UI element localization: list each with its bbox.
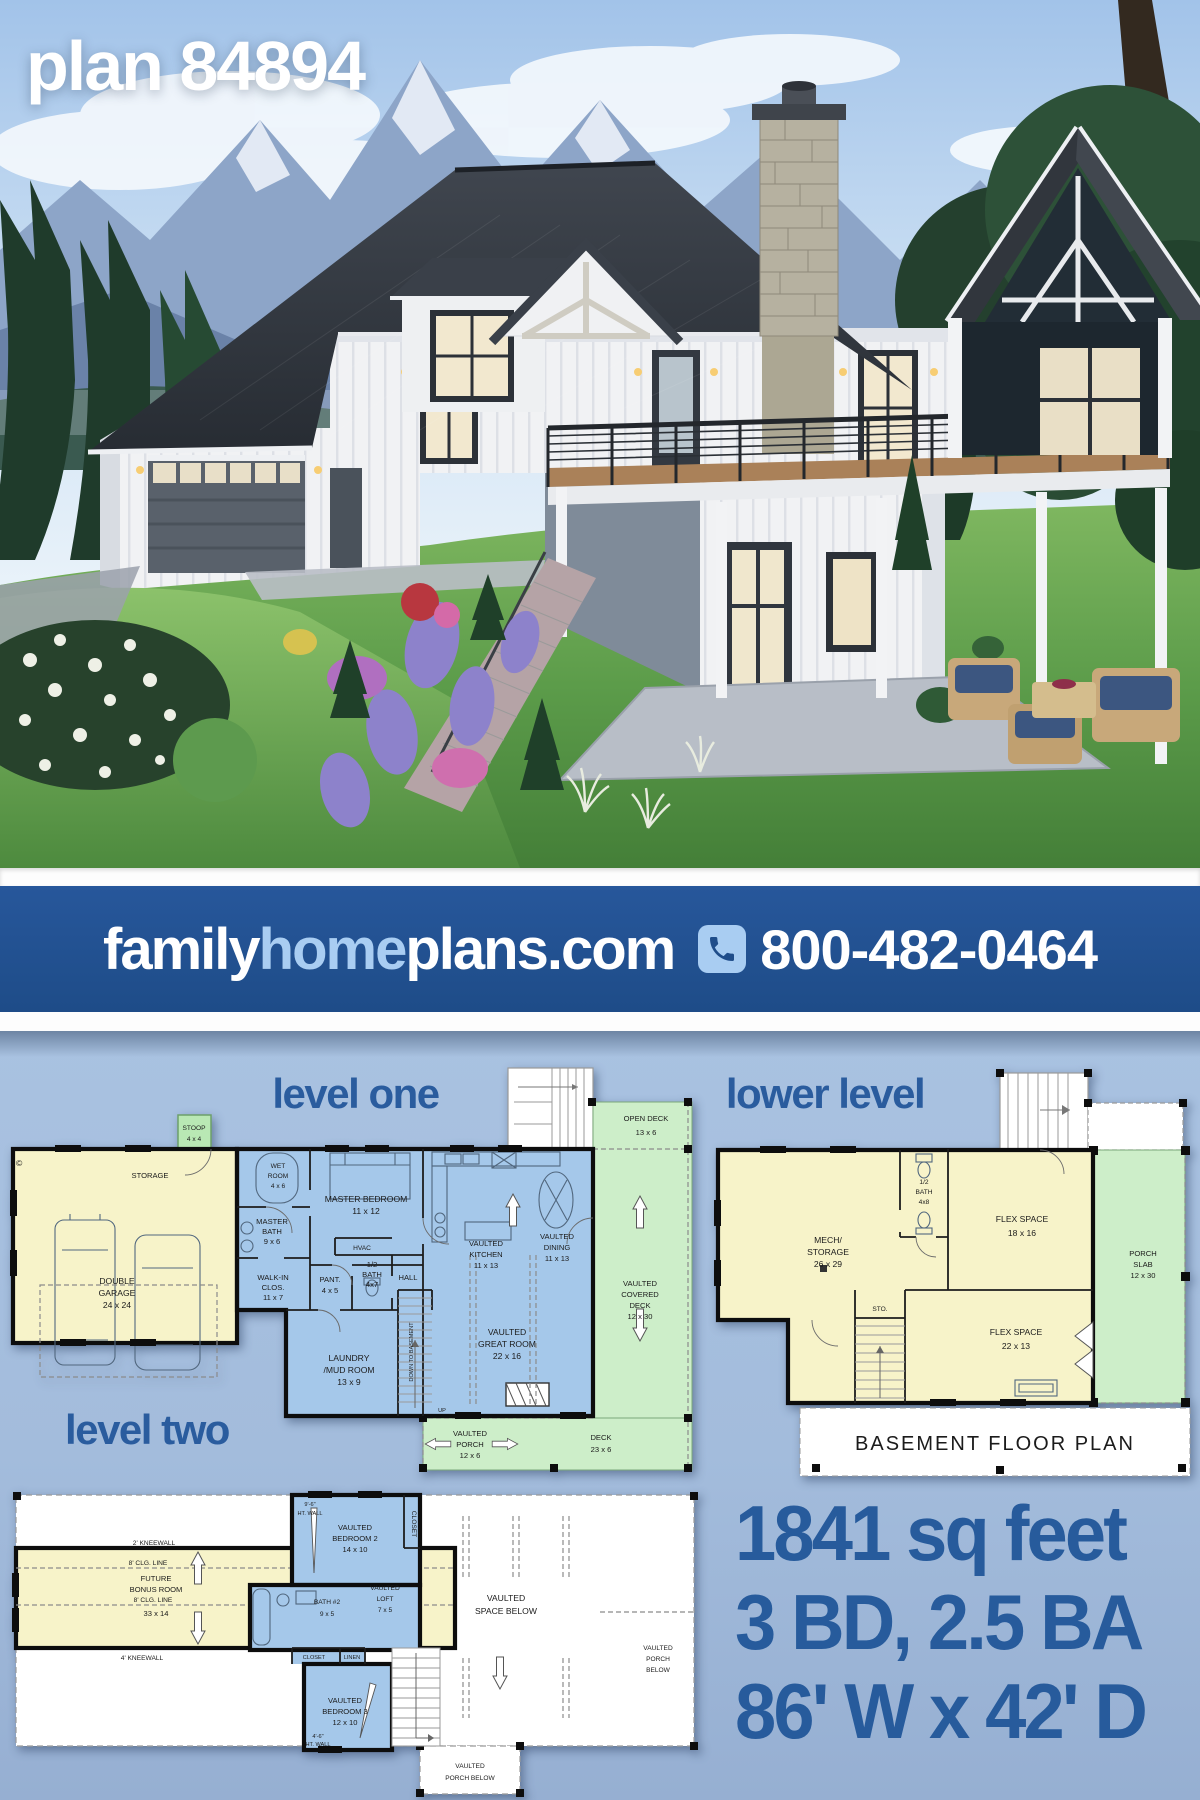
porch-below-box xyxy=(420,1746,520,1794)
svg-text:FUTURE: FUTURE xyxy=(141,1574,172,1583)
svg-text:DECK: DECK xyxy=(629,1301,650,1310)
phone-number: 800-482-0464 xyxy=(760,917,1097,982)
svg-text:24 x 24: 24 x 24 xyxy=(103,1300,131,1310)
svg-text:DINING: DINING xyxy=(544,1243,571,1252)
svg-text:4 x 4: 4 x 4 xyxy=(187,1136,202,1143)
svg-text:STORAGE: STORAGE xyxy=(807,1247,849,1257)
svg-text:VAULTED: VAULTED xyxy=(540,1232,574,1241)
svg-text:VAULTED: VAULTED xyxy=(455,1763,485,1770)
svg-text:VAULTED: VAULTED xyxy=(338,1523,372,1532)
svg-text:PORCH BELOW: PORCH BELOW xyxy=(445,1775,495,1782)
svg-text:©: © xyxy=(16,1158,23,1168)
plan-stats: 1841 sq feet 3 BD, 2.5 BA 86' W x 42' D xyxy=(735,1489,1172,1756)
svg-text:VAULTED: VAULTED xyxy=(623,1279,657,1288)
svg-text:HALL: HALL xyxy=(399,1273,418,1282)
svg-text:BONUS ROOM: BONUS ROOM xyxy=(130,1585,183,1594)
svg-text:4x8: 4x8 xyxy=(919,1199,930,1206)
svg-text:LINEN: LINEN xyxy=(344,1655,360,1661)
svg-text:7 x 5: 7 x 5 xyxy=(378,1607,393,1614)
svg-text:12 x 30: 12 x 30 xyxy=(1131,1271,1156,1280)
lower-level-floorplan: BASEMENT FLOOR PLAN 1/2 BATH 4x8 FLEX SP… xyxy=(700,1050,1200,1480)
svg-text:4 x 5: 4 x 5 xyxy=(322,1286,338,1295)
svg-text:PORCH: PORCH xyxy=(456,1440,483,1449)
svg-text:FLEX SPACE: FLEX SPACE xyxy=(996,1214,1049,1224)
house-photo xyxy=(0,0,1200,868)
brand-family: family xyxy=(103,917,259,982)
svg-text:VAULTED: VAULTED xyxy=(370,1585,400,1592)
svg-text:BATH: BATH xyxy=(915,1189,932,1196)
svg-text:STO.: STO. xyxy=(872,1306,887,1313)
svg-text:ROOM: ROOM xyxy=(268,1173,289,1180)
svg-text:COVERED: COVERED xyxy=(621,1290,659,1299)
svg-text:/MUD ROOM: /MUD ROOM xyxy=(323,1365,374,1375)
svg-text:4x7: 4x7 xyxy=(366,1280,378,1289)
stat-size: 86' W x 42' D xyxy=(735,1667,1172,1756)
svg-text:BEDROOM 2: BEDROOM 2 xyxy=(332,1534,378,1543)
svg-text:WALK-IN: WALK-IN xyxy=(257,1273,288,1282)
basement-caption: BASEMENT FLOOR PLAN xyxy=(855,1433,1135,1455)
svg-text:BATH: BATH xyxy=(362,1270,382,1279)
svg-text:VAULTED: VAULTED xyxy=(487,1593,525,1603)
svg-text:MECH/: MECH/ xyxy=(814,1235,842,1245)
svg-text:VAULTED: VAULTED xyxy=(469,1239,503,1248)
svg-text:HVAC: HVAC xyxy=(353,1245,371,1252)
divider-strip-bottom xyxy=(0,1012,1200,1031)
plan-number-overlay: plan 84894 xyxy=(26,26,364,106)
phone-icon xyxy=(698,925,746,973)
svg-text:FLEX SPACE: FLEX SPACE xyxy=(990,1327,1043,1337)
svg-text:1/2: 1/2 xyxy=(367,1260,378,1269)
svg-text:11 x 7: 11 x 7 xyxy=(263,1293,283,1302)
svg-text:12 x 10: 12 x 10 xyxy=(333,1718,358,1727)
svg-text:OPEN DECK: OPEN DECK xyxy=(624,1114,669,1123)
svg-text:4 x 6: 4 x 6 xyxy=(271,1183,286,1190)
caption-band: BASEMENT FLOOR PLAN xyxy=(800,1408,1190,1476)
brand-plans: plans.com xyxy=(405,917,674,982)
divider-strip-top xyxy=(0,868,1200,886)
svg-text:DOWN TO BASEMENT: DOWN TO BASEMENT xyxy=(409,1322,415,1382)
level-two-floorplan: 2' KNEEWALL 8' CLG. LINE 8' CLG. LINE FU… xyxy=(8,1488,700,1800)
level-one-floorplan: STOOP 4 x 4 © STORAGE DOUBLE GARAGE 24 x… xyxy=(0,1040,700,1480)
svg-text:GARAGE: GARAGE xyxy=(99,1288,136,1298)
svg-text:MASTER BEDROOM: MASTER BEDROOM xyxy=(325,1194,408,1204)
svg-text:LOFT: LOFT xyxy=(377,1596,394,1603)
svg-text:LAUNDRY: LAUNDRY xyxy=(329,1353,370,1363)
svg-text:HT. WALL: HT. WALL xyxy=(306,1742,331,1748)
svg-text:VAULTED: VAULTED xyxy=(643,1645,673,1652)
brand-logo: familyhomeplans.com xyxy=(103,916,674,983)
svg-text:8' CLG. LINE: 8' CLG. LINE xyxy=(134,1597,173,1604)
svg-text:VAULTED: VAULTED xyxy=(453,1429,487,1438)
svg-text:DECK: DECK xyxy=(590,1433,611,1442)
level-two-stairwell xyxy=(392,1648,440,1746)
svg-text:23 x 6: 23 x 6 xyxy=(591,1445,612,1454)
svg-text:MASTER: MASTER xyxy=(256,1217,288,1226)
svg-text:9 x 6: 9 x 6 xyxy=(264,1237,280,1246)
svg-text:CLOSET: CLOSET xyxy=(303,1655,326,1661)
svg-text:18 x 16: 18 x 16 xyxy=(1008,1228,1036,1238)
svg-text:13 x 9: 13 x 9 xyxy=(337,1377,361,1387)
svg-text:BEDROOM 3: BEDROOM 3 xyxy=(322,1707,368,1716)
svg-text:PORCH: PORCH xyxy=(1129,1249,1156,1258)
garage-room xyxy=(13,1149,237,1343)
stat-bed-bath: 3 BD, 2.5 BA xyxy=(735,1578,1172,1667)
svg-text:2' KNEEWALL: 2' KNEEWALL xyxy=(133,1540,176,1547)
svg-text:14 x 10: 14 x 10 xyxy=(343,1545,368,1554)
svg-text:VAULTED: VAULTED xyxy=(328,1696,362,1705)
chimney xyxy=(752,81,846,454)
svg-text:UP: UP xyxy=(438,1408,446,1414)
svg-text:12 x 30: 12 x 30 xyxy=(628,1312,653,1321)
svg-text:PANT.: PANT. xyxy=(320,1275,341,1284)
svg-text:26 x 29: 26 x 29 xyxy=(814,1259,842,1269)
svg-text:SPACE BELOW: SPACE BELOW xyxy=(475,1606,538,1616)
svg-text:33 x 14: 33 x 14 xyxy=(144,1609,169,1618)
svg-text:KITCHEN: KITCHEN xyxy=(469,1250,502,1259)
svg-text:PORCH: PORCH xyxy=(646,1656,670,1663)
svg-text:BATH #2: BATH #2 xyxy=(314,1599,341,1606)
svg-text:SLAB: SLAB xyxy=(1133,1260,1152,1269)
svg-text:WET: WET xyxy=(271,1163,286,1170)
svg-text:12 x 6: 12 x 6 xyxy=(460,1451,481,1460)
exterior-stairs xyxy=(508,1068,593,1149)
svg-text:9'-6": 9'-6" xyxy=(304,1502,315,1508)
svg-text:1/2: 1/2 xyxy=(919,1179,928,1186)
svg-text:STOOP: STOOP xyxy=(183,1125,207,1132)
svg-text:11 x 13: 11 x 13 xyxy=(545,1254,569,1263)
stat-area: 1841 sq feet xyxy=(735,1489,1172,1578)
svg-text:GREAT ROOM: GREAT ROOM xyxy=(478,1339,536,1349)
svg-text:HT. WALL: HT. WALL xyxy=(298,1511,323,1517)
svg-text:VAULTED: VAULTED xyxy=(488,1327,526,1337)
phone-contact: 800-482-0464 xyxy=(698,917,1097,982)
basement-exterior-stairs xyxy=(996,1069,1187,1150)
svg-text:4'-6": 4'-6" xyxy=(312,1734,323,1740)
brand-banner: familyhomeplans.com 800-482-0464 xyxy=(0,886,1200,1012)
svg-text:CLOSET: CLOSET xyxy=(410,1511,417,1537)
svg-text:4' KNEEWALL: 4' KNEEWALL xyxy=(121,1655,164,1662)
svg-text:9 x 5: 9 x 5 xyxy=(320,1611,335,1618)
svg-text:11 x 13: 11 x 13 xyxy=(474,1261,498,1270)
svg-text:BELOW: BELOW xyxy=(646,1667,671,1674)
svg-text:8' CLG. LINE: 8' CLG. LINE xyxy=(129,1560,168,1567)
svg-text:DOUBLE: DOUBLE xyxy=(99,1276,135,1286)
svg-text:STORAGE: STORAGE xyxy=(132,1171,169,1180)
svg-text:22 x 16: 22 x 16 xyxy=(493,1351,521,1361)
svg-text:CLOS.: CLOS. xyxy=(262,1283,285,1292)
svg-text:BATH: BATH xyxy=(262,1227,282,1236)
stoop xyxy=(178,1115,211,1149)
svg-text:11 x 12: 11 x 12 xyxy=(352,1206,380,1216)
svg-text:22 x 13: 22 x 13 xyxy=(1002,1341,1030,1351)
svg-text:13 x 6: 13 x 6 xyxy=(636,1128,657,1137)
brand-home: home xyxy=(259,917,406,982)
